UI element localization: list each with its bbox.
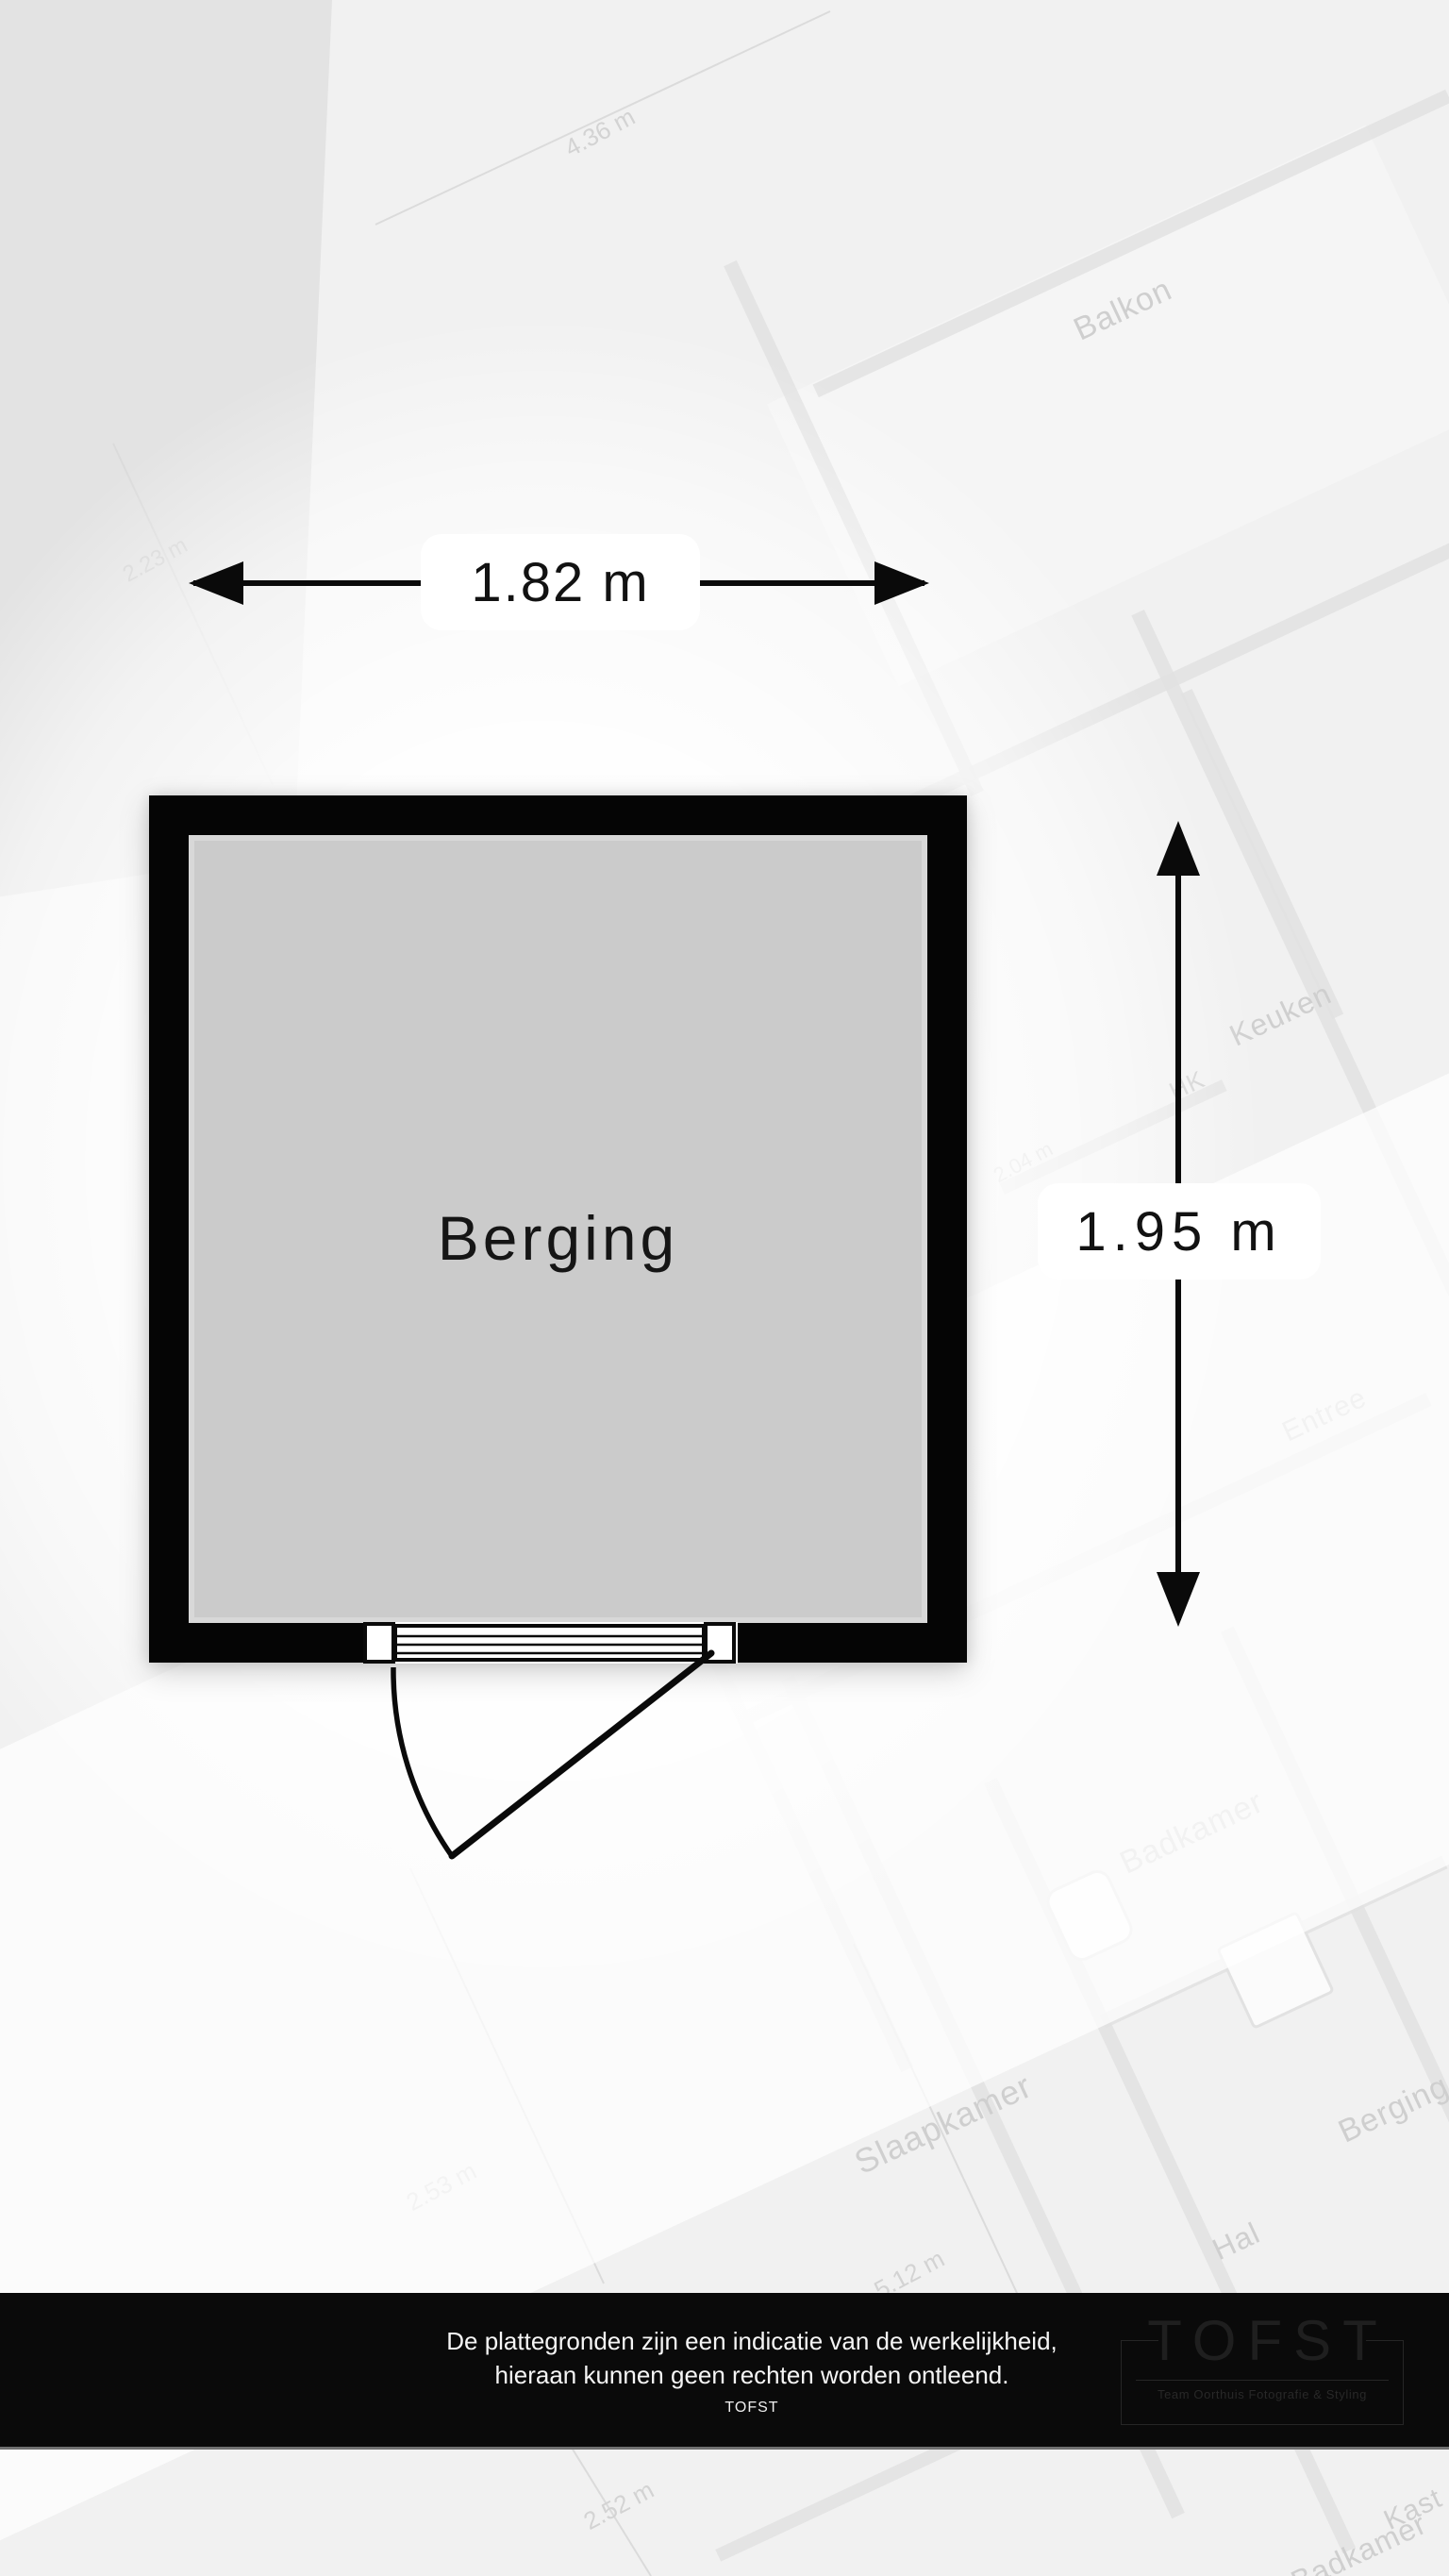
arrow-down-icon	[1157, 1572, 1200, 1627]
disclaimer-line-2: hieraan kunnen geen rechten worden ontle…	[495, 2358, 1009, 2392]
arrow-right-icon	[874, 561, 929, 605]
arrow-left-icon	[189, 561, 243, 605]
door-assembly	[363, 1622, 738, 1856]
door-leaf	[452, 1653, 711, 1856]
plan-annotations	[0, 0, 1449, 2576]
door-threshold	[395, 1626, 704, 1660]
door-swing-arc	[393, 1667, 452, 1856]
tofst-logo-subtitle: Team Oorthuis Fotografie & Styling	[1119, 2387, 1406, 2401]
tofst-logo: TOFST Team Oorthuis Fotografie & Styling	[1119, 2308, 1406, 2431]
disclaimer-line-1: De plattegronden zijn een indicatie van …	[446, 2324, 1058, 2358]
tofst-logo-rule	[1136, 2380, 1389, 2381]
door-post-left	[365, 1624, 393, 1662]
width-dimension-label: 1.82 m	[421, 534, 700, 630]
height-dimension-label: 1.95 m	[1038, 1183, 1321, 1280]
footer-bar: De plattegronden zijn een indicatie van …	[0, 2293, 1449, 2450]
tofst-logo-frame	[1121, 2340, 1404, 2425]
footer-brand: TOFST	[724, 2400, 778, 2417]
arrow-up-icon	[1157, 821, 1200, 876]
floorplan-page: Balkon Keuken HK Entree Slaapkamer Hal B…	[0, 0, 1449, 2576]
